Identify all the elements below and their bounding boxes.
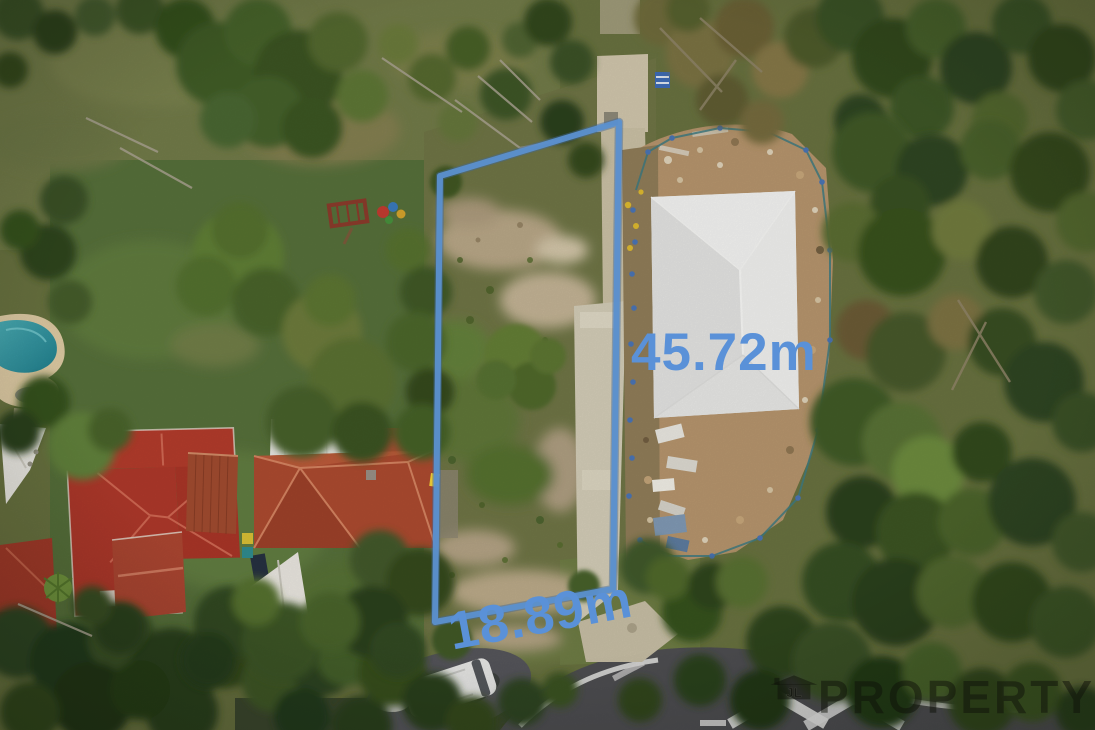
watermark-logo: JL PROPERTY bbox=[770, 644, 1095, 730]
aerial-photo: 45.72m 18.89m JL PROPERTY bbox=[0, 0, 1095, 730]
watermark-wordmark: PROPERTY bbox=[818, 670, 1095, 724]
dimension-label-side: 45.72m bbox=[631, 326, 817, 379]
house-icon: JL bbox=[770, 644, 818, 730]
watermark-monogram: JL bbox=[786, 685, 801, 700]
